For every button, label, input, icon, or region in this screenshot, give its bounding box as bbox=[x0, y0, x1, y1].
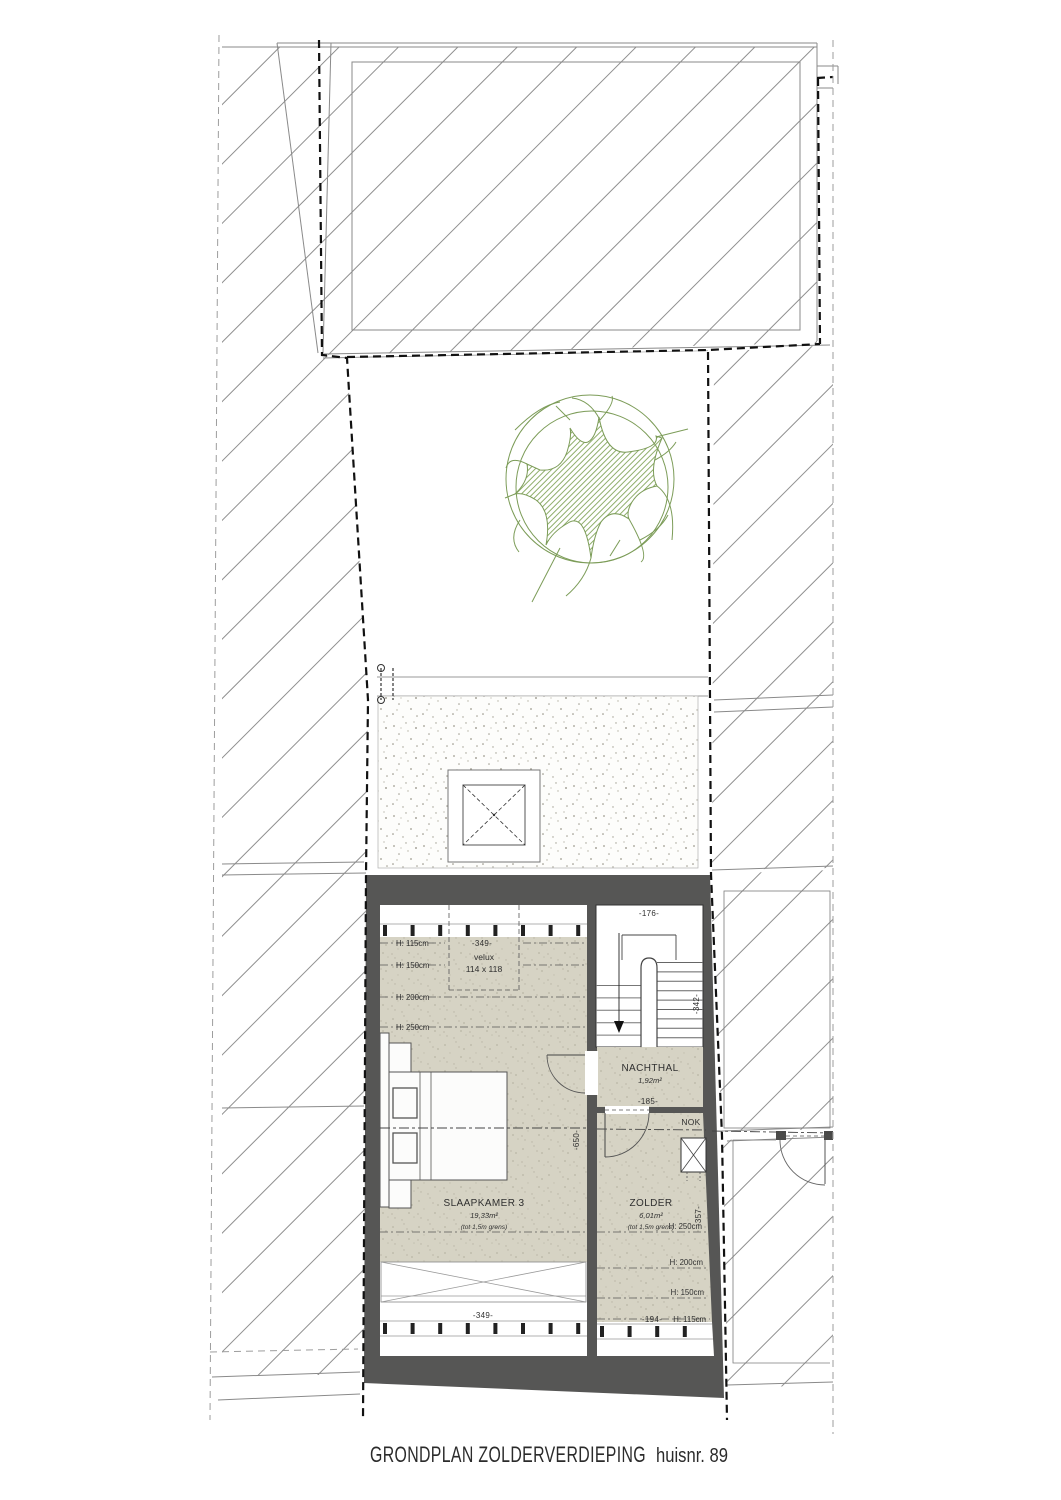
roof-edge-bottom-right bbox=[597, 1322, 714, 1356]
height-label-250-top: H: 250cm bbox=[396, 1023, 429, 1032]
nightstand-top bbox=[389, 1043, 411, 1072]
dim-185-nachthal: -185- bbox=[638, 1097, 658, 1106]
title-main: GRONDPLAN ZOLDERVERDIEPING bbox=[370, 1442, 646, 1467]
velux-size: 114 x 118 bbox=[466, 964, 503, 974]
height-label-115-top: H: 115cm bbox=[396, 939, 429, 948]
zolder-area: 6,01m² bbox=[639, 1211, 663, 1220]
floor-plan-page: H: 115cm -349- velux 114 x 118 H: 150cm … bbox=[0, 0, 1061, 1500]
floor-plan-drawing: H: 115cm -349- velux 114 x 118 H: 150cm … bbox=[0, 0, 1061, 1500]
nightstand-bottom bbox=[389, 1179, 411, 1208]
pillow-bottom bbox=[393, 1133, 417, 1163]
dim-650-slaapkamer: -650- bbox=[572, 1130, 581, 1150]
dim-176-stairs: -176- bbox=[639, 909, 659, 918]
dim-349-bottom: -349- bbox=[473, 1311, 493, 1320]
title-suffix: huisnr. 89 bbox=[656, 1445, 728, 1467]
right-mid-neighbour-hatch bbox=[710, 870, 833, 1132]
slaapkamer-name: SLAAPKAMER 3 bbox=[444, 1198, 525, 1209]
nachthal-name: NACHTHAL bbox=[621, 1063, 678, 1074]
top-neighbour-hatch bbox=[322, 47, 817, 355]
dim-342-stairs: -342- bbox=[692, 994, 701, 1014]
right-low-neighbour-hatch bbox=[723, 1136, 833, 1388]
garden-area bbox=[347, 351, 708, 677]
dim-194-zolder: -194- bbox=[642, 1315, 662, 1324]
zolder-name: ZOLDER bbox=[630, 1198, 673, 1209]
height-label-200-bottom: H: 200cm bbox=[670, 1258, 703, 1267]
ridge-label: NOK bbox=[681, 1117, 700, 1127]
slaapkamer-area: 19,33m² bbox=[470, 1211, 498, 1220]
wardrobe bbox=[380, 1033, 389, 1207]
height-label-250-bottom: H: 250cm bbox=[669, 1222, 702, 1231]
height-label-150-top: H: 150cm bbox=[396, 961, 429, 970]
terrace-skylight bbox=[448, 770, 540, 862]
drawing-title: GRONDPLAN ZOLDERVERDIEPING huisnr. 89 bbox=[370, 1442, 728, 1467]
slaapkamer-note: (tot 1,5m grens) bbox=[461, 1224, 508, 1231]
right-strip-hatch bbox=[712, 345, 833, 870]
height-label-115-bottom: H: 115cm bbox=[673, 1315, 706, 1324]
height-label-150-bottom: H: 150cm bbox=[671, 1288, 704, 1297]
roof-edge-top bbox=[380, 905, 587, 937]
velux-label: velux bbox=[474, 952, 495, 962]
height-label-200-top: H: 200cm bbox=[396, 993, 429, 1002]
dim-349-top: -349- bbox=[472, 939, 492, 948]
zolder-note: (tot 1,5m grens) bbox=[628, 1224, 675, 1231]
staircase bbox=[596, 905, 703, 1047]
nachthal-area: 1,92m² bbox=[638, 1076, 662, 1085]
stair-handrail bbox=[641, 958, 657, 1047]
pillow-top bbox=[393, 1088, 417, 1118]
roof-edge-bottom-left bbox=[380, 1262, 587, 1356]
